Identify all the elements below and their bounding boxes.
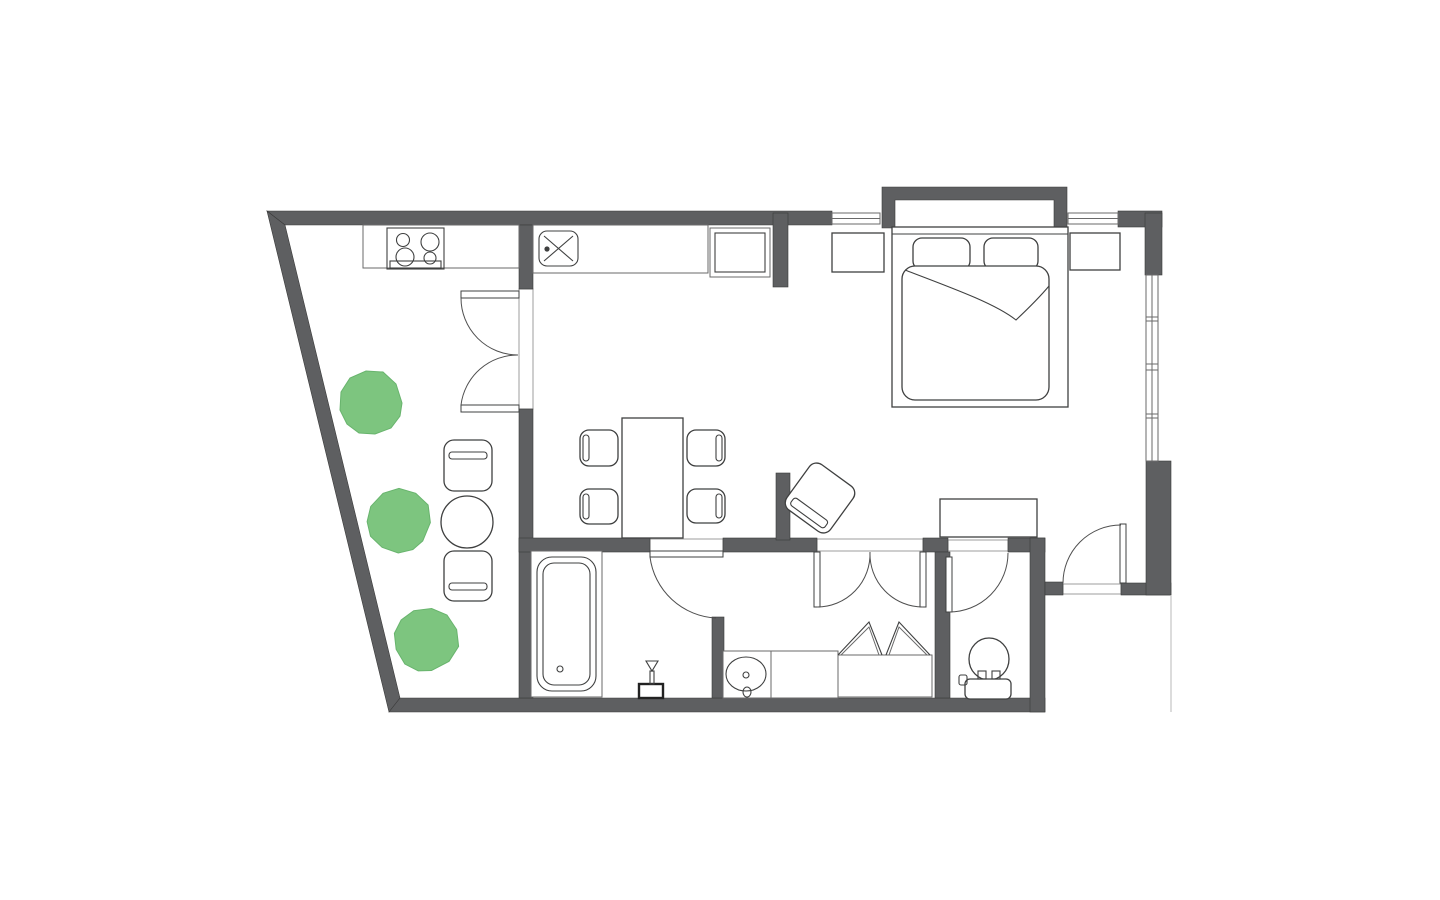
faucet-dot	[544, 246, 549, 251]
bistro-chair	[444, 551, 492, 601]
door-swing-arc	[949, 553, 1008, 612]
door-leaf	[461, 291, 519, 298]
sideboard	[940, 499, 1037, 537]
wardrobe	[838, 655, 932, 697]
wall-wc-right	[1030, 538, 1045, 712]
bedroom	[832, 227, 1120, 407]
wall-kitchen-door-stub	[519, 225, 533, 289]
refrigerator	[710, 228, 770, 277]
dining-chair	[580, 430, 618, 466]
living-area	[782, 459, 1037, 537]
plant-2	[355, 477, 443, 565]
door-swing-arc	[461, 298, 518, 355]
door-swing-arc	[870, 552, 923, 607]
bistro-table	[441, 496, 493, 548]
door-swing-arc	[817, 552, 870, 607]
toilet	[959, 638, 1011, 699]
kitchen	[363, 225, 770, 277]
wc-door	[946, 553, 1008, 612]
floor-plan	[0, 0, 1440, 900]
plant-1	[340, 371, 402, 434]
wc	[959, 638, 1011, 699]
nightstand-right	[1070, 233, 1120, 270]
brush-head	[646, 661, 658, 671]
door-leaf	[814, 552, 820, 607]
wall-kitchen-right-stub	[773, 213, 788, 287]
wall-top	[267, 211, 832, 225]
wall-entry-stub-left	[1045, 582, 1063, 595]
armchair	[782, 459, 859, 536]
dining-chair	[687, 430, 725, 466]
dining-chair	[687, 489, 725, 523]
wardrobe-bifold-doors	[838, 622, 930, 655]
door-leaf	[920, 552, 926, 607]
door-swing-arc	[1063, 525, 1121, 583]
wall-bath-top-c	[923, 538, 948, 552]
dining-table	[622, 418, 683, 538]
terrace-door-jamb	[519, 289, 533, 409]
entry-door-jamb	[1063, 584, 1121, 594]
wall-right-block	[1146, 461, 1171, 595]
bathroom	[531, 551, 663, 698]
toilet-tank	[965, 679, 1011, 699]
pillow	[913, 238, 970, 270]
door-leaf	[650, 551, 723, 557]
double-swing-door	[814, 552, 926, 607]
wc-door-jamb	[948, 540, 1008, 551]
brush-handle	[650, 671, 654, 684]
wall-tub-dressing-divider	[712, 617, 724, 698]
plant-3	[390, 604, 463, 676]
door-leaf	[461, 405, 519, 412]
toilet-bowl	[969, 638, 1009, 680]
swing-door-jamb	[817, 539, 923, 551]
wall-bath-top-a	[519, 538, 650, 552]
nightstand-left	[832, 233, 884, 272]
bathroom-door	[650, 551, 723, 618]
pillow	[984, 238, 1038, 270]
door-leaf	[1120, 524, 1126, 583]
brush-stand	[639, 661, 663, 698]
bathtub	[531, 551, 602, 697]
window-bedroom-right	[1068, 213, 1118, 224]
terrace	[340, 371, 493, 676]
terrace-double-door	[461, 291, 519, 412]
entry-door	[1063, 524, 1126, 583]
dressing-room	[723, 622, 932, 698]
bathroom-door-jamb	[650, 539, 723, 551]
window-bedroom-left	[832, 213, 880, 224]
bistro-chair	[444, 440, 492, 491]
door-swing-arc	[650, 557, 716, 618]
blanket	[902, 266, 1049, 400]
dining-area	[580, 418, 725, 538]
wall-bath-top-b	[723, 538, 817, 552]
door-swing-arc	[461, 355, 518, 405]
wall-right-corner-vert	[1145, 213, 1162, 275]
door-leaf	[946, 557, 952, 612]
window-strip-right-wall	[1146, 275, 1158, 461]
wall-bed-niche	[882, 187, 1067, 228]
wall-diagonal-left	[267, 211, 400, 712]
wall-bottom	[389, 698, 1045, 712]
dining-chair	[580, 489, 618, 524]
